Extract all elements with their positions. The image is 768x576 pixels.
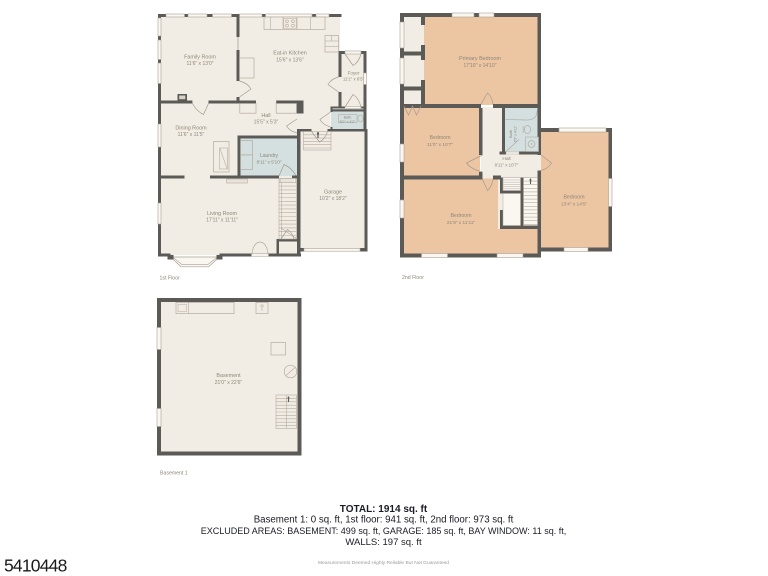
svg-text:Basement 1: Basement 1 (160, 471, 188, 477)
svg-text:Living Room: Living Room (207, 211, 237, 217)
svg-text:Hall: Hall (261, 113, 270, 119)
svg-text:WALLS: 197 sq. ft: WALLS: 197 sq. ft (345, 537, 422, 548)
svg-text:Basement: Basement (216, 373, 241, 379)
svg-text:5410448: 5410448 (4, 556, 67, 576)
svg-text:Laundry: Laundry (260, 153, 279, 159)
svg-text:5'5" x 4'11": 5'5" x 4'11" (514, 125, 518, 142)
svg-text:11'6" x 11'5": 11'6" x 11'5" (178, 132, 205, 138)
svg-text:21'9" x 11'11": 21'9" x 11'11" (447, 220, 476, 226)
svg-text:10'2" x 18'2": 10'2" x 18'2" (319, 196, 347, 202)
svg-text:21'0" x 22'6": 21'0" x 22'6" (215, 380, 243, 386)
svg-text:8'0" x 4'2": 8'0" x 4'2" (340, 120, 356, 124)
svg-text:Primary Bedroom: Primary Bedroom (459, 56, 501, 62)
svg-text:Basement 1: 0 sq. ft, 1st floo: Basement 1: 0 sq. ft, 1st floor: 941 sq.… (254, 515, 514, 526)
svg-text:17'10" x 14'10": 17'10" x 14'10" (464, 63, 497, 69)
svg-text:1st Floor: 1st Floor (160, 276, 180, 282)
svg-text:Garage: Garage (324, 190, 342, 196)
svg-text:EXCLUDED AREAS: BASEMENT: 499: EXCLUDED AREAS: BASEMENT: 499 sq. ft, GA… (201, 526, 566, 536)
svg-text:15'5" x 5'3": 15'5" x 5'3" (254, 120, 279, 126)
svg-text:13'4" x 14'5": 13'4" x 14'5" (561, 202, 588, 208)
svg-text:Hall: Hall (502, 156, 510, 162)
svg-text:Bedroom: Bedroom (429, 135, 450, 141)
svg-text:17'11" x 11'11": 17'11" x 11'11" (206, 218, 238, 224)
svg-text:Dining Room: Dining Room (175, 126, 207, 132)
svg-text:11'6" x 13'0": 11'6" x 13'0" (186, 61, 213, 67)
svg-text:Bath: Bath (344, 116, 352, 120)
svg-text:8'11" x 5'10": 8'11" x 5'10" (257, 159, 282, 164)
svg-text:11'0" x 10'7": 11'0" x 10'7" (427, 142, 453, 148)
svg-text:Eat-in Kitchen: Eat-in Kitchen (273, 51, 307, 57)
svg-text:8'11" x 10'7": 8'11" x 10'7" (495, 163, 519, 168)
svg-text:Bedroom: Bedroom (563, 195, 584, 201)
svg-text:11'1" x 6'5": 11'1" x 6'5" (343, 77, 365, 82)
svg-text:Foyer: Foyer (348, 71, 360, 76)
svg-text:2nd Floor: 2nd Floor (402, 275, 424, 281)
svg-text:TOTAL: 1914 sq. ft: TOTAL: 1914 sq. ft (340, 504, 428, 515)
svg-text:Bath: Bath (509, 130, 513, 138)
svg-text:15'6" x 13'6": 15'6" x 13'6" (276, 58, 304, 64)
svg-text:Bedroom: Bedroom (450, 213, 471, 219)
svg-text:Family Room: Family Room (184, 54, 216, 60)
svg-text:Measurements Deemed Highly Rel: Measurements Deemed Highly Reliable But … (318, 560, 449, 566)
